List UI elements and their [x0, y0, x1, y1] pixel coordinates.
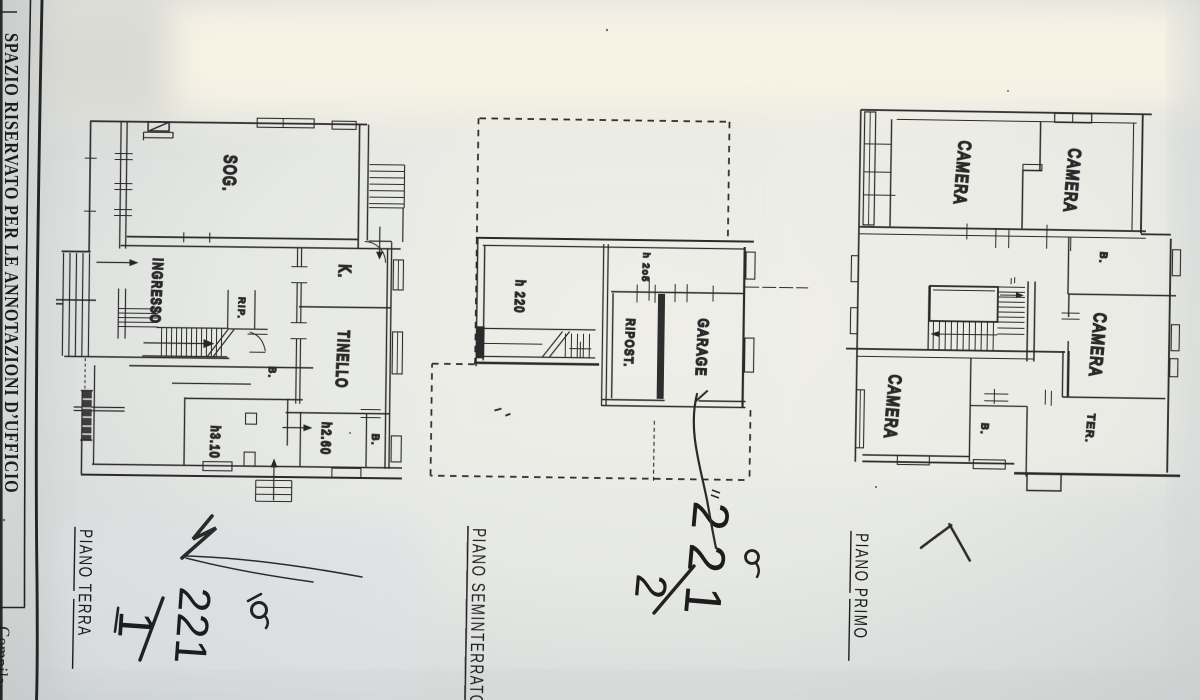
svg-text:PIANO TERRA: PIANO TERRA	[74, 529, 96, 637]
svg-text:B.: B.	[266, 366, 278, 379]
svg-text:SOG.: SOG.	[218, 155, 239, 193]
svg-text:GARAGE: GARAGE	[693, 318, 712, 377]
svg-text:K.: K.	[334, 264, 353, 279]
svg-text:SPAZIO RISERVATO PER LE ANNOTA: SPAZIO RISERVATO PER LE ANNOTAZIONI D’UF…	[1, 33, 23, 493]
svg-text:TINELLO: TINELLO	[332, 330, 353, 389]
svg-text:B.: B.	[369, 433, 381, 446]
svg-text:h 2o5: h 2o5	[640, 253, 651, 283]
svg-text:221: 221	[671, 499, 740, 631]
svg-text:TER.: TER.	[1083, 413, 1098, 444]
svg-text:h 220: h 220	[511, 280, 528, 314]
svg-text:h3.10: h3.10	[207, 426, 223, 460]
svg-text:221: 221	[165, 585, 221, 666]
svg-text:B.: B.	[978, 422, 990, 435]
svg-text:B.: B.	[1097, 251, 1109, 264]
svg-text:INGRESSO: INGRESSO	[147, 258, 166, 324]
svg-text:PIANO PRIMO: PIANO PRIMO	[850, 533, 872, 640]
svg-text:PIANO SEMINTERRATO: PIANO SEMINTERRATO	[465, 528, 489, 700]
svg-text:RIP.: RIP.	[236, 297, 247, 320]
svg-text:h2.60: h2.60	[318, 422, 334, 456]
svg-text:RIPOST.: RIPOST.	[621, 318, 636, 368]
